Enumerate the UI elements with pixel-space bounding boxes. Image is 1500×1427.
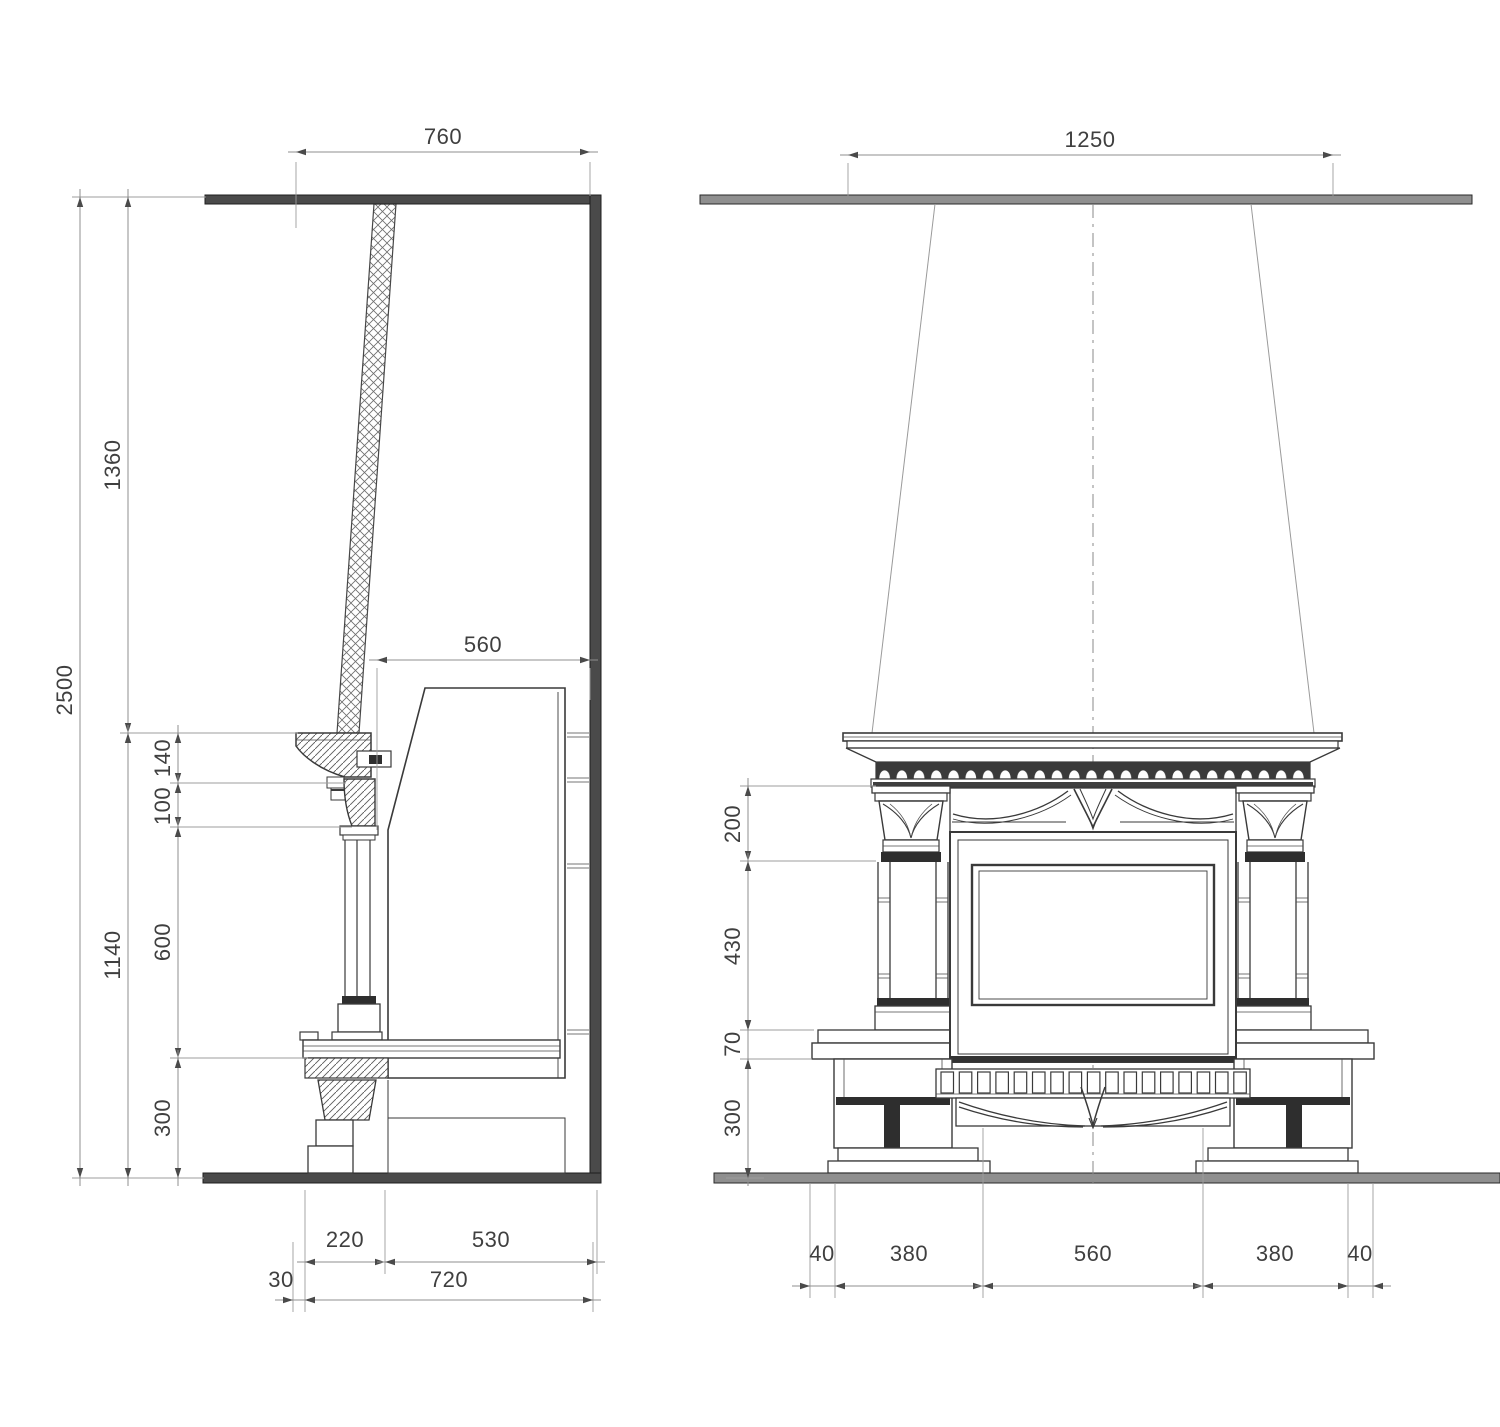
dim-tick xyxy=(745,861,751,871)
dentil xyxy=(1124,1072,1137,1093)
dim-label: 560 xyxy=(1074,1241,1112,1266)
dim-tick xyxy=(175,1168,181,1178)
dim-side-total-height: 2500 xyxy=(52,189,83,1186)
chimney-flue xyxy=(337,204,396,733)
dentil-squares xyxy=(941,1072,1246,1093)
dim-tick xyxy=(583,1297,593,1303)
dentil xyxy=(1142,1072,1155,1093)
shelf-second-band xyxy=(847,741,1338,748)
dim-tick xyxy=(377,657,387,663)
capital-band-2 xyxy=(875,793,947,801)
hearth-band-right-top xyxy=(1236,1030,1368,1043)
dim-tick xyxy=(175,733,181,743)
dim-tick xyxy=(175,783,181,793)
capital-body xyxy=(879,801,943,840)
front-elevation-view xyxy=(700,195,1500,1183)
technical-drawing-canvas: 7602500136011401401006003005602205303072… xyxy=(0,0,1500,1427)
dim-front-right-overhang: 40 xyxy=(1330,1241,1391,1289)
dim-front-left-pier: 380 xyxy=(827,1241,991,1289)
bracket-anchor xyxy=(369,755,382,764)
dentil xyxy=(1234,1072,1247,1093)
dentil xyxy=(959,1072,972,1093)
capital-abacus xyxy=(881,852,941,862)
plinth-base xyxy=(308,1146,353,1173)
capital-band-2 xyxy=(1239,793,1311,801)
pier-dark-bar xyxy=(884,1105,900,1148)
anthemion-frieze xyxy=(876,762,1310,779)
dim-front-opening-width: 560 xyxy=(975,1241,1211,1289)
dim-front-right-pier: 380 xyxy=(1195,1241,1356,1289)
apron-panel xyxy=(956,1098,1230,1126)
dentil xyxy=(1014,1072,1026,1093)
pier-base-step-2 xyxy=(828,1161,990,1173)
fireplace-drawing: 7602500136011401401006003005602205303072… xyxy=(0,0,1500,1427)
dentil xyxy=(978,1072,991,1093)
dim-front-column-height: 430 xyxy=(720,853,751,1038)
column-base-band xyxy=(877,998,949,1006)
column-joint-ticks xyxy=(1238,898,1308,978)
dim-tick xyxy=(305,1297,315,1303)
dim-tick xyxy=(800,1283,810,1289)
dim-tick xyxy=(1338,1283,1348,1289)
rear-wall xyxy=(590,195,601,1183)
dim-tick xyxy=(848,152,858,158)
frame-bottom-band xyxy=(950,1056,1236,1062)
ceiling-slab xyxy=(205,195,601,204)
dim-front-left-overhang: 40 xyxy=(792,1241,853,1289)
dim-side-rear-depth: 530 xyxy=(377,1227,605,1265)
ceiling-line xyxy=(700,195,1472,204)
capital-band-1 xyxy=(1236,786,1314,793)
dim-tick xyxy=(983,1283,993,1289)
dim-label: 2500 xyxy=(52,665,77,716)
dim-side-flue-depth: 560 xyxy=(369,632,598,663)
dim-label: 1250 xyxy=(1065,127,1116,152)
dim-tick xyxy=(125,197,131,207)
dim-tick xyxy=(835,1283,845,1289)
pilaster-shaft-lines xyxy=(345,840,370,996)
hearth-cut-slab xyxy=(305,1058,388,1078)
dim-tick xyxy=(1323,152,1333,158)
hearth-band-left-top xyxy=(818,1030,950,1043)
dim-tick xyxy=(580,149,590,155)
dim-side-lower-height: 1140 xyxy=(100,725,131,1186)
floor-slab xyxy=(203,1173,601,1183)
under-body-support xyxy=(388,1118,565,1173)
column-left xyxy=(875,862,951,1030)
dim-tick xyxy=(1203,1283,1213,1289)
dim-label: 140 xyxy=(150,739,175,777)
dim-label: 300 xyxy=(720,1099,745,1137)
dim-tick xyxy=(745,1059,751,1069)
pier-base-step-2 xyxy=(1196,1161,1358,1173)
hood-projection-right xyxy=(1251,204,1314,733)
plinth-section xyxy=(318,1080,376,1120)
pilaster-base-block xyxy=(338,1004,380,1032)
column-base-block xyxy=(1235,1006,1311,1030)
dentil xyxy=(1069,1072,1082,1093)
dim-label: 1140 xyxy=(100,930,125,979)
pier-dark-bar xyxy=(1286,1105,1302,1148)
dentil xyxy=(1106,1072,1119,1093)
hearth-band-left xyxy=(812,1043,950,1059)
dentil xyxy=(1087,1072,1100,1093)
dim-label: 1360 xyxy=(100,440,125,491)
dim-tick xyxy=(587,1259,597,1265)
dim-label: 220 xyxy=(326,1227,364,1252)
pier-dark-band xyxy=(836,1097,950,1105)
dim-label: 30 xyxy=(268,1267,293,1292)
dim-side-upper-height: 1360 xyxy=(100,189,131,741)
dim-front-shelf-width: 1250 xyxy=(840,127,1341,158)
dim-tick xyxy=(385,1259,395,1265)
capital-abacus xyxy=(1245,852,1305,862)
firebox-body xyxy=(388,688,565,1078)
dim-label: 380 xyxy=(890,1241,928,1266)
dim-label: 100 xyxy=(150,787,175,825)
pier-base-step-1 xyxy=(1208,1148,1348,1161)
pilaster-neck-band xyxy=(343,835,375,840)
capital-body xyxy=(1243,801,1307,840)
dim-tick xyxy=(77,1168,83,1178)
capital-section xyxy=(344,779,375,826)
column-base-band xyxy=(1237,998,1309,1006)
dim-label: 300 xyxy=(150,1099,175,1137)
dentil xyxy=(1179,1072,1192,1093)
dentil xyxy=(1033,1072,1046,1093)
hearth-band-right xyxy=(1236,1043,1374,1059)
hearth-front-lip xyxy=(300,1032,318,1040)
dim-label: 720 xyxy=(430,1267,468,1292)
dim-front-capital-height: 200 xyxy=(720,778,751,869)
hearth-slab xyxy=(303,1040,560,1058)
dim-label: 530 xyxy=(472,1227,510,1252)
pilaster-base-band xyxy=(342,996,376,1004)
pier-dark-band xyxy=(1236,1097,1350,1105)
dentil xyxy=(1216,1072,1229,1093)
plinth-step xyxy=(316,1120,353,1146)
dim-label: 600 xyxy=(150,923,175,961)
dim-label: 40 xyxy=(1347,1241,1372,1266)
dim-side-top-width: 760 xyxy=(288,124,598,155)
dim-front-plinth-height: 300 xyxy=(720,1051,751,1186)
side-section-view xyxy=(203,195,601,1183)
hood-projection-left xyxy=(872,204,935,733)
column-right xyxy=(1235,862,1311,1030)
cornice-step-1 xyxy=(327,777,344,788)
dentil xyxy=(941,1072,954,1093)
dim-side-base-height: 300 xyxy=(150,1050,181,1186)
dim-label: 560 xyxy=(464,632,502,657)
dim-label: 70 xyxy=(720,1031,745,1056)
dim-label: 430 xyxy=(720,927,745,965)
dim-label: 760 xyxy=(424,124,462,149)
dim-side-hearth-depth: 220 xyxy=(297,1227,393,1265)
dim-tick xyxy=(175,1058,181,1068)
dim-tick xyxy=(296,149,306,155)
dim-tick xyxy=(745,786,751,796)
dentil xyxy=(996,1072,1009,1093)
dim-tick xyxy=(125,733,131,743)
dim-tick xyxy=(745,1020,751,1030)
floor-line xyxy=(714,1173,1500,1183)
pilaster-base-step xyxy=(332,1032,382,1040)
dim-tick xyxy=(580,657,590,663)
pier-base-step-1 xyxy=(838,1148,978,1161)
dim-side-column-height: 600 xyxy=(150,819,181,1066)
capital-right xyxy=(1236,786,1314,862)
dim-label: 380 xyxy=(1256,1241,1294,1266)
dim-side-cornice-height: 140 xyxy=(150,725,181,791)
dim-tick xyxy=(305,1259,315,1265)
dim-label: 200 xyxy=(720,805,745,843)
capital-left xyxy=(872,786,950,862)
dim-side-capital-height: 100 xyxy=(150,775,181,835)
dim-label: 40 xyxy=(809,1241,834,1266)
dentil xyxy=(1197,1072,1210,1093)
dim-tick xyxy=(175,827,181,837)
dim-tick xyxy=(283,1297,293,1303)
dentil xyxy=(1161,1072,1174,1093)
dim-side-total-depth: 720 xyxy=(297,1267,601,1303)
dentil xyxy=(1051,1072,1064,1093)
column-base-block xyxy=(875,1006,951,1030)
firebox-opening xyxy=(972,865,1214,1005)
capital-band-1 xyxy=(872,786,950,793)
column-joint-ticks xyxy=(878,898,948,978)
dim-tick xyxy=(77,197,83,207)
dim-tick xyxy=(125,1168,131,1178)
dim-tick xyxy=(1373,1283,1383,1289)
wall-joint-marks xyxy=(567,733,589,1034)
